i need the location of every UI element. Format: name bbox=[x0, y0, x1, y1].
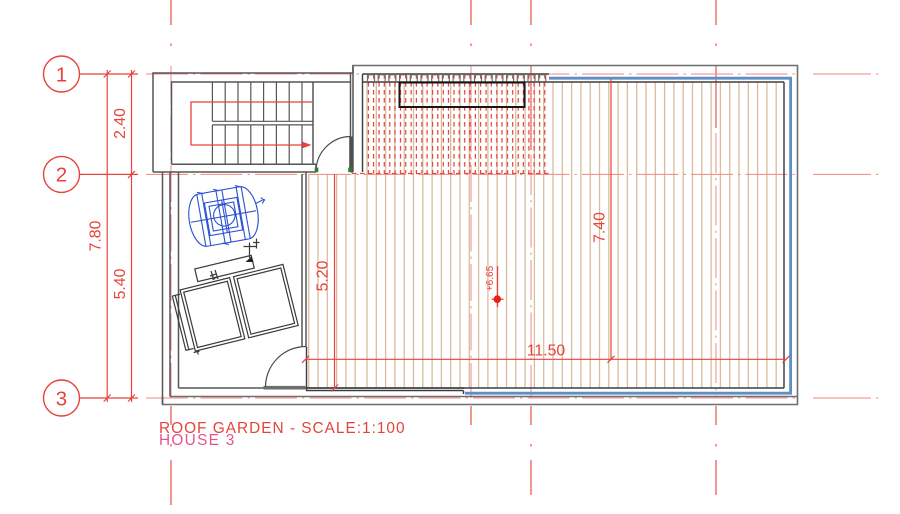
svg-text:2.40: 2.40 bbox=[112, 108, 129, 139]
svg-text:7.40: 7.40 bbox=[592, 212, 609, 243]
svg-text:1: 1 bbox=[56, 63, 67, 86]
svg-text:11.50: 11.50 bbox=[527, 343, 566, 360]
svg-text:HOUSE 3: HOUSE 3 bbox=[159, 432, 236, 449]
svg-text:5.40: 5.40 bbox=[112, 268, 129, 299]
svg-text:2: 2 bbox=[56, 164, 67, 187]
svg-text:7.80: 7.80 bbox=[88, 220, 105, 251]
svg-text:+6.65: +6.65 bbox=[485, 265, 496, 291]
svg-text:5.20: 5.20 bbox=[315, 260, 332, 291]
svg-text:3: 3 bbox=[56, 387, 67, 410]
